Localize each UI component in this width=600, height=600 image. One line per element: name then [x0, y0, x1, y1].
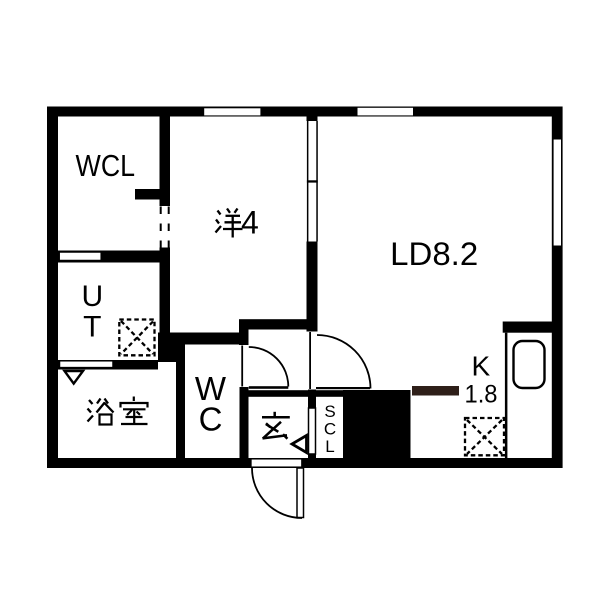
svg-text:S: S: [324, 402, 335, 421]
svg-text:C: C: [324, 420, 336, 439]
svg-text:K: K: [471, 350, 490, 381]
svg-text:T: T: [83, 310, 101, 343]
svg-text:4: 4: [241, 205, 259, 241]
svg-text:U: U: [81, 280, 103, 313]
svg-text:C: C: [199, 400, 223, 437]
svg-text:L: L: [325, 437, 334, 456]
svg-text:WCL: WCL: [76, 148, 136, 183]
svg-text:LD8.2: LD8.2: [390, 236, 478, 272]
svg-text:1.8: 1.8: [465, 380, 498, 408]
